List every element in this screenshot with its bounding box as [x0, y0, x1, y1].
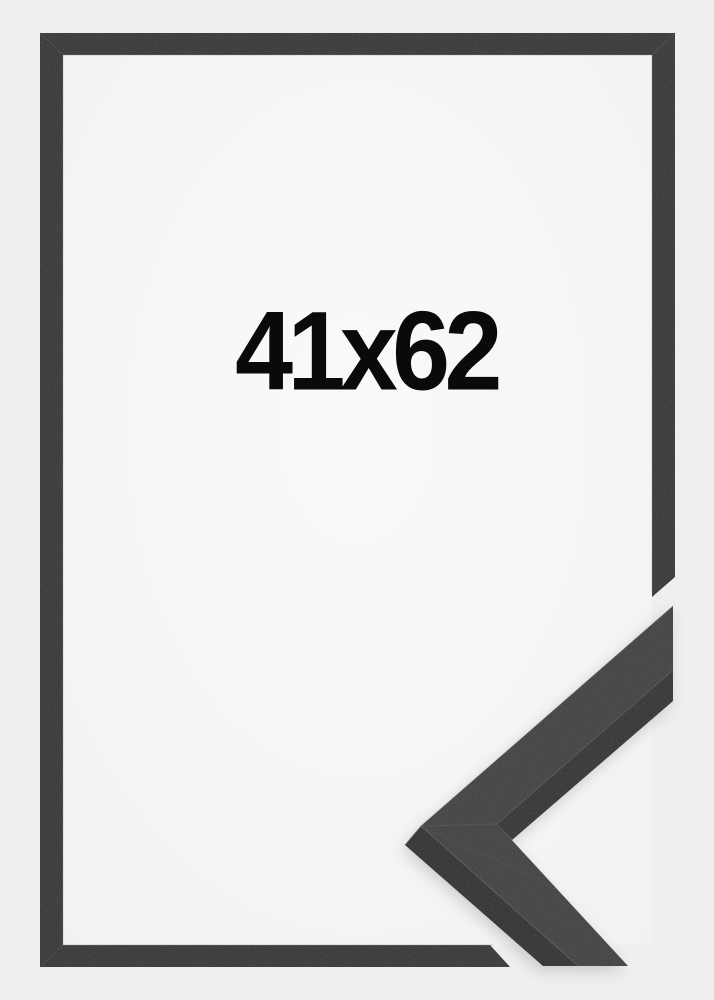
size-label: 41x62 [235, 287, 497, 416]
frame-opening-panel [63, 55, 652, 945]
frame-graphic [0, 0, 714, 1000]
frame-product-photo: 41x62 [0, 0, 714, 1000]
